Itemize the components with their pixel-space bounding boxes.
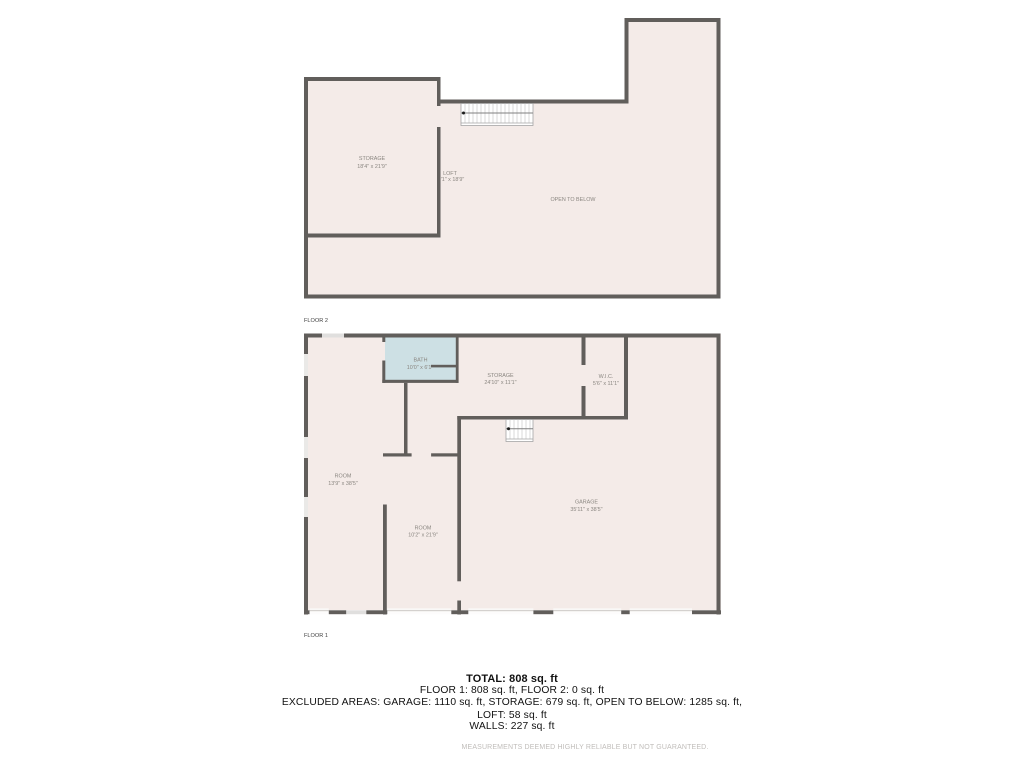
svg-text:FLOOR 1: FLOOR 1 <box>304 633 328 639</box>
svg-text:OPEN TO BELOW: OPEN TO BELOW <box>550 197 596 203</box>
svg-text:10'0" x 6'1": 10'0" x 6'1" <box>407 365 434 371</box>
svg-text:24'10" x 11'1": 24'10" x 11'1" <box>484 380 516 386</box>
svg-text:5'6" x 11'1": 5'6" x 11'1" <box>593 381 619 387</box>
svg-text:13'9" x 38'5": 13'9" x 38'5" <box>328 481 358 487</box>
svg-text:LOFT: LOFT <box>443 171 457 177</box>
svg-text:18'4" x 21'9": 18'4" x 21'9" <box>357 164 387 170</box>
svg-text:10'2" x 21'9": 10'2" x 21'9" <box>408 533 438 539</box>
svg-text:ROOM: ROOM <box>415 526 432 532</box>
svg-text:BATH: BATH <box>414 358 428 364</box>
svg-text:W.I.C.: W.I.C. <box>599 374 614 380</box>
svg-text:3'1" x 18'9": 3'1" x 18'9" <box>438 177 465 183</box>
svg-text:35'11" x 38'5": 35'11" x 38'5" <box>570 507 602 513</box>
svg-text:GARAGE: GARAGE <box>575 500 598 506</box>
svg-text:FLOOR 2: FLOOR 2 <box>304 318 328 324</box>
svg-text:STORAGE: STORAGE <box>359 156 386 162</box>
svg-text:ROOM: ROOM <box>335 474 352 480</box>
svg-text:STORAGE: STORAGE <box>487 373 514 379</box>
